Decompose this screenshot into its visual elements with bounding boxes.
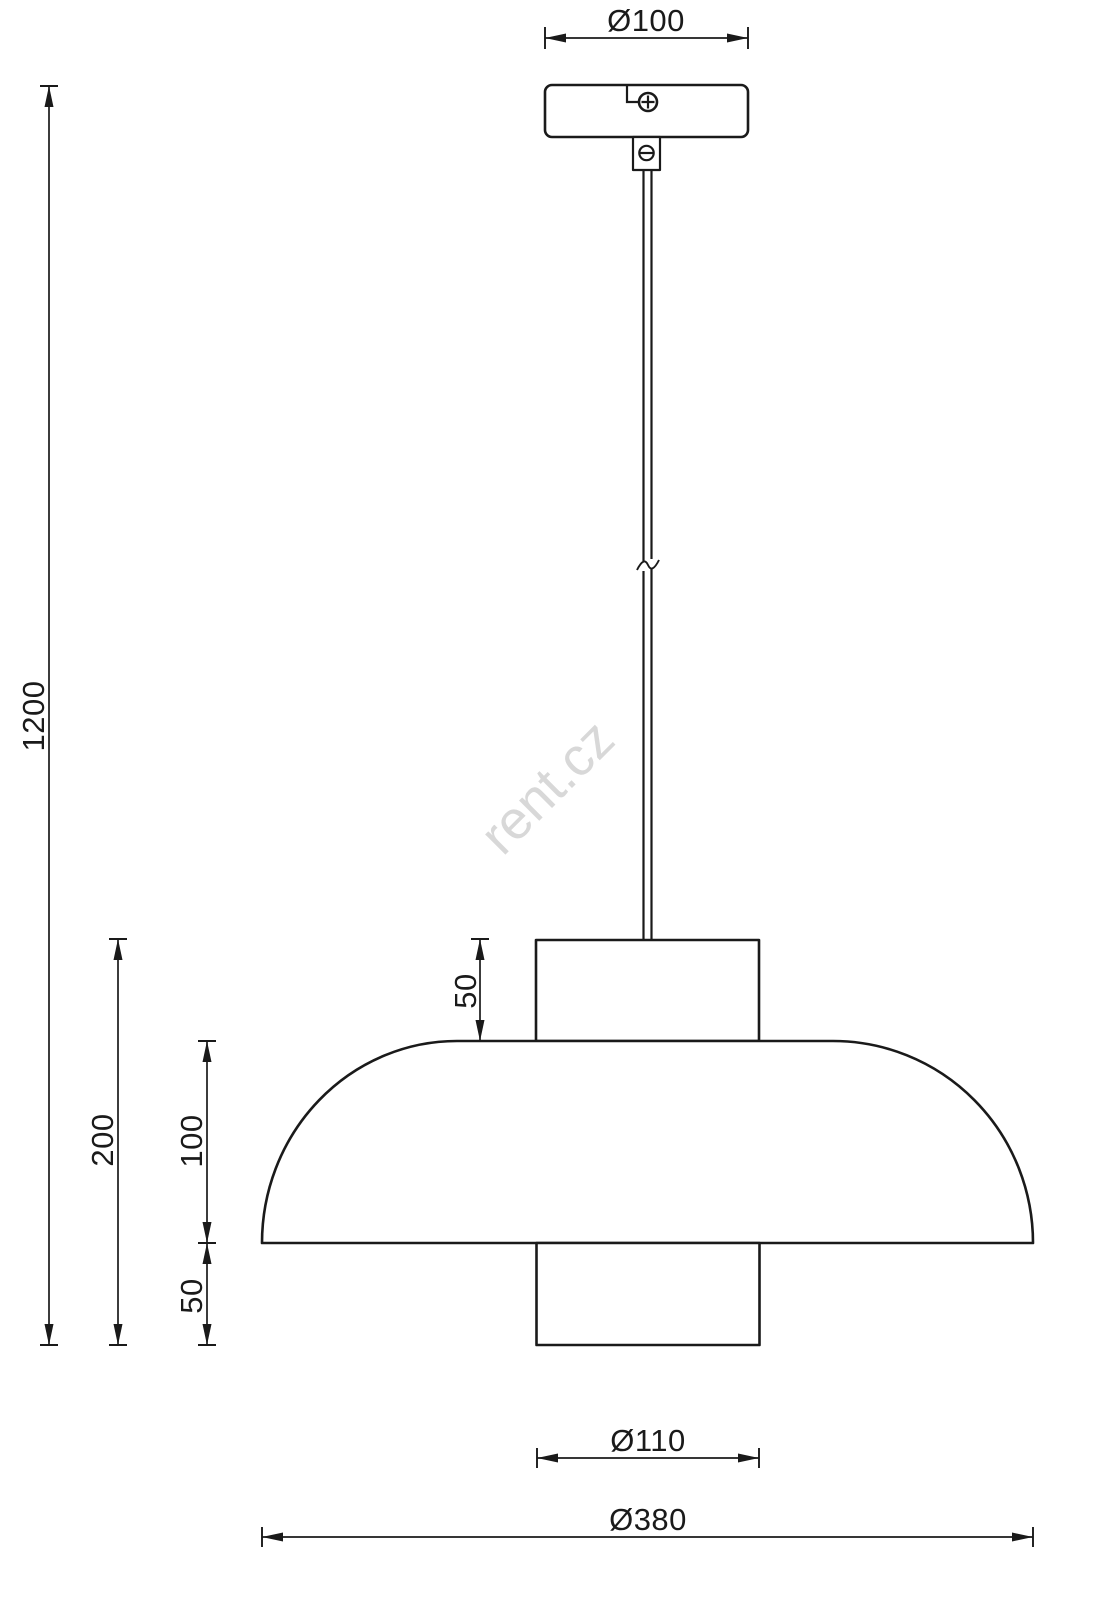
ceiling-canopy — [545, 85, 748, 137]
strain-relief-block — [633, 137, 660, 170]
dim-canopy-diameter: Ø100 — [545, 3, 748, 49]
dim-top-cylinder-height: 50 — [448, 939, 489, 1041]
dim-shade-diameter: Ø380 — [262, 1502, 1033, 1547]
suspension-cable — [637, 170, 659, 940]
dim-dome-height: 100 — [174, 1041, 216, 1243]
dim-total-drop: 1200 — [16, 86, 58, 1345]
dim-label-shade-diameter: Ø380 — [609, 1502, 687, 1537]
dim-label-dome-height: 100 — [174, 1114, 209, 1167]
cable-lower-segment — [644, 569, 652, 940]
phillips-screw-icon — [639, 93, 657, 111]
watermark-text: rent.cz — [469, 709, 626, 866]
dim-shade-total-height: 200 — [85, 939, 127, 1345]
dim-label-bottom-cylinder-height: 50 — [174, 1278, 209, 1313]
dim-label-total-drop: 1200 — [16, 681, 51, 752]
dim-label-top-cylinder-height: 50 — [448, 973, 483, 1008]
dim-label-bottom-cylinder-diameter: Ø110 — [610, 1423, 686, 1458]
technical-drawing-pendant-lamp: rent.cz Ø100 — [0, 0, 1118, 1600]
dim-bottom-cylinder-diameter: Ø110 — [537, 1423, 759, 1468]
shade-dome — [262, 1041, 1033, 1243]
shade-bottom-cylinder — [537, 1243, 760, 1345]
cable-upper-segment — [644, 170, 652, 561]
dim-label-shade-total-height: 200 — [85, 1113, 120, 1166]
shade-top-cylinder — [536, 940, 759, 1041]
drawing-svg: rent.cz Ø100 — [0, 0, 1118, 1600]
dim-label-canopy-diameter: Ø100 — [607, 3, 685, 38]
dim-bottom-cylinder-height: 50 — [174, 1243, 216, 1345]
cable-break-icon — [637, 560, 659, 570]
